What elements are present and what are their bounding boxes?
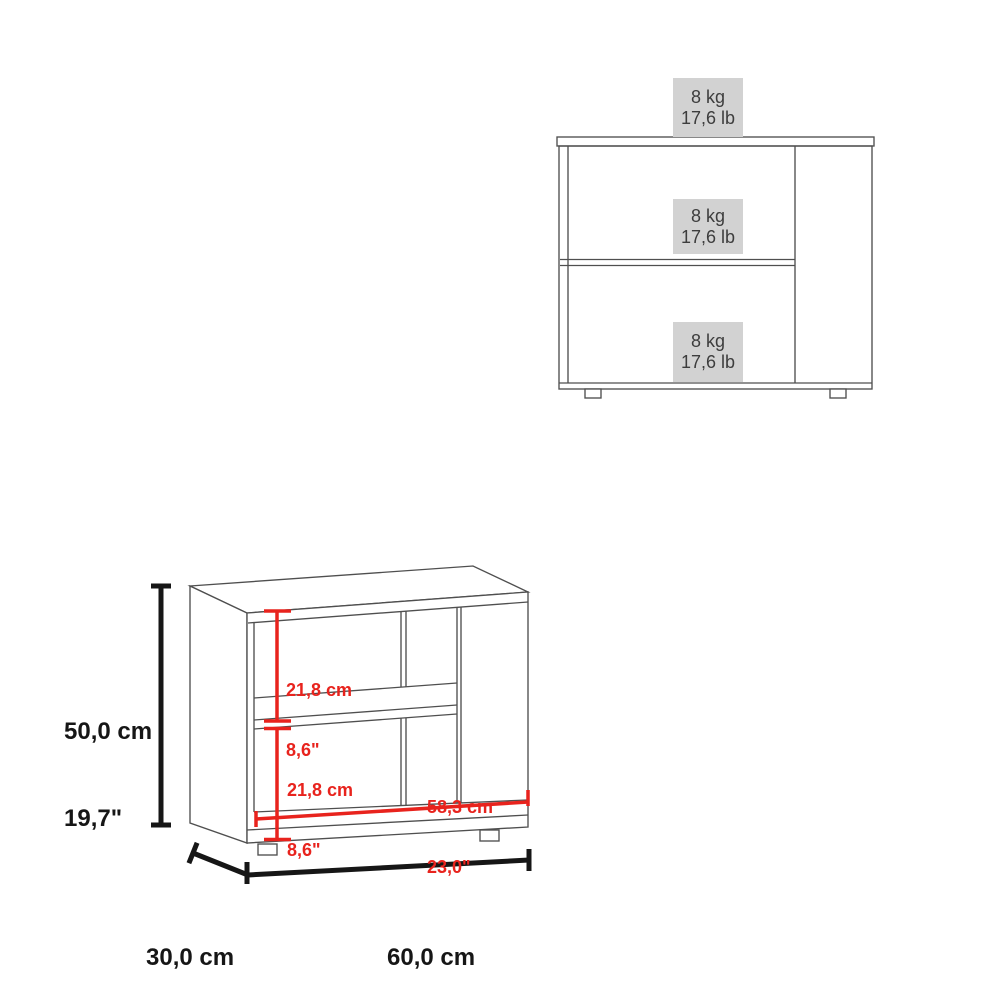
lower-shelf-dimension-label: 21,8 cm 8,6"	[287, 740, 353, 900]
interior-width-dimension-label: 58,3 cm 23,0"	[427, 757, 493, 917]
depth-dimension-line	[193, 853, 248, 875]
front-view-top-panel	[557, 137, 874, 146]
lower-shelf-cm: 21,8 cm	[287, 780, 353, 800]
front-view-left-foot	[585, 389, 601, 398]
upper-shelf-cm: 21,8 cm	[286, 680, 352, 700]
depth-dimension-label: 30,0 cm 11,8"	[146, 885, 234, 1000]
furniture-dimension-diagram: 8 kg 17,6 lb 8 kg 17,6 lb 8 kg 17,6 lb 5…	[0, 0, 1000, 1000]
weight-kg: 8 kg	[691, 206, 725, 227]
weight-kg: 8 kg	[691, 331, 725, 352]
height-cm: 50,0 cm	[64, 717, 152, 746]
weight-lb: 17,6 lb	[681, 108, 735, 129]
interior-width-cm: 58,3 cm	[427, 797, 493, 817]
lower-shelf-inch: 8,6"	[287, 840, 353, 860]
depth-cm: 30,0 cm	[146, 943, 234, 972]
weight-lb: 17,6 lb	[681, 227, 735, 248]
interior-width-inch: 23,0"	[427, 857, 493, 877]
height-dimension-label: 50,0 cm 19,7"	[64, 659, 152, 891]
weight-kg: 8 kg	[691, 87, 725, 108]
perspective-left-foot	[258, 844, 277, 855]
perspective-left-side-face	[190, 586, 247, 843]
weight-capacity-top-label: 8 kg 17,6 lb	[673, 78, 743, 137]
weight-lb: 17,6 lb	[681, 352, 735, 373]
height-inch: 19,7"	[64, 804, 152, 833]
weight-capacity-shelf-label: 8 kg 17,6 lb	[673, 199, 743, 254]
weight-capacity-bottom-label: 8 kg 17,6 lb	[673, 322, 743, 382]
front-view-right-foot	[830, 389, 846, 398]
width-cm: 60,0 cm	[387, 943, 475, 972]
